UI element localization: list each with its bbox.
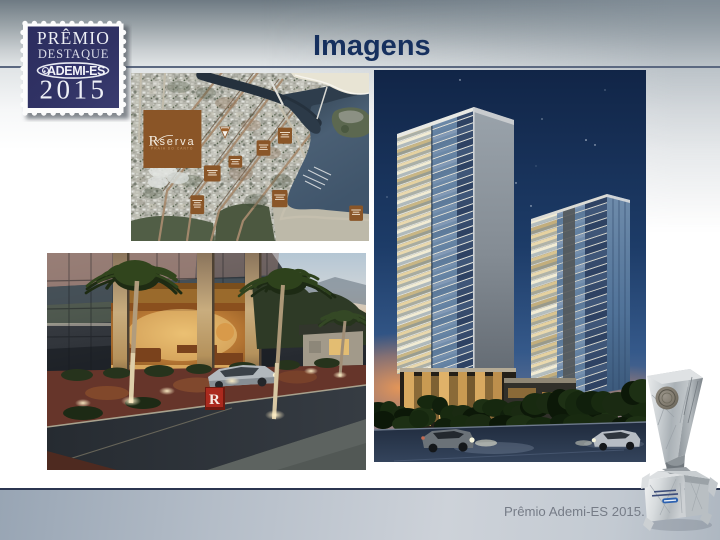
svg-text:PRÊMIO: PRÊMIO [37, 28, 110, 48]
svg-text:2015: 2015 [40, 75, 108, 105]
svg-text:DESTAQUE: DESTAQUE [38, 47, 109, 61]
svg-text:R: R [209, 392, 220, 408]
svg-text:PRAIA DO CANTO: PRAIA DO CANTO [151, 147, 193, 151]
